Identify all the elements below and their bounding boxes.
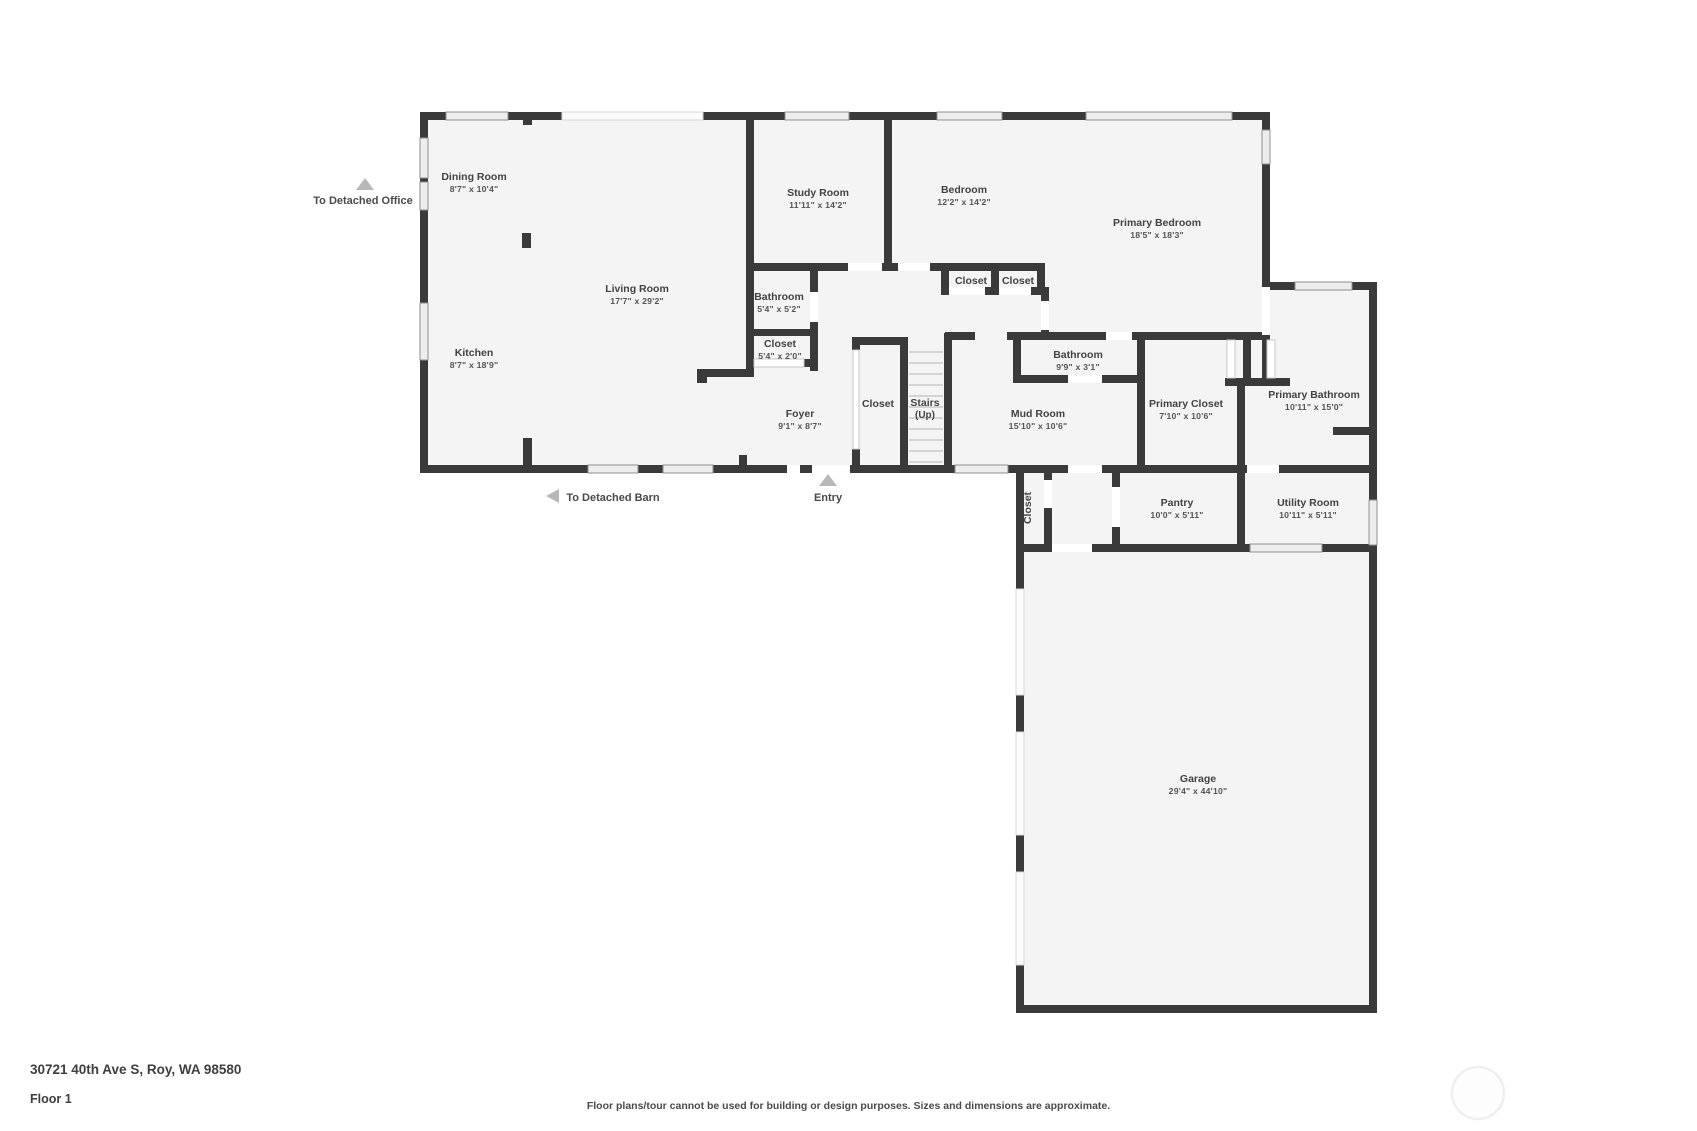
room-dims-pantry: 10'0" x 5'11" xyxy=(1150,510,1203,520)
disclaimer-text: Floor plans/tour cannot be used for buil… xyxy=(0,1100,1697,1112)
room-label-primary-closet: Primary Closet xyxy=(1149,398,1224,410)
room-label-mud-room: Mud Room xyxy=(1011,408,1065,420)
room-label-closet-garage: Closet xyxy=(1022,491,1034,524)
room-dims-bedroom: 12'2" x 14'2" xyxy=(937,197,991,207)
room-dims-bathroom-hall: 5'4" x 5'2" xyxy=(757,304,801,314)
annotation-to-detached-office: To Detached Office xyxy=(313,195,412,207)
annotation-entry: Entry xyxy=(814,492,843,504)
up-arrow-icon xyxy=(819,474,837,486)
floor-plan-drawing: Dining Room8'7" x 10'4"Living Room17'7" … xyxy=(0,0,1697,1131)
room-label-pantry: Pantry xyxy=(1161,497,1194,509)
room-label-closet-foyer: Closet xyxy=(862,398,895,410)
up-arrow-icon xyxy=(356,178,374,190)
room-dims-stairs: (Up) xyxy=(915,410,935,421)
room-dims-primary-bathroom: 10'11" x 15'0" xyxy=(1285,402,1343,412)
room-label-study-room: Study Room xyxy=(787,187,849,199)
room-dims-primary-closet: 7'10" x 10'6" xyxy=(1159,411,1213,421)
floor-plan-page: Dining Room8'7" x 10'4"Living Room17'7" … xyxy=(0,0,1697,1131)
room-dims-closet-hall: 5'4" x 2'0" xyxy=(758,351,802,361)
room-dims-study-room: 11'11" x 14'2" xyxy=(789,200,847,210)
room-label-primary-bedroom: Primary Bedroom xyxy=(1113,217,1201,229)
room-dims-dining-room: 8'7" x 10'4" xyxy=(450,184,499,194)
room-label-bathroom-mud: Bathroom xyxy=(1053,349,1103,361)
property-address: 30721 40th Ave S, Roy, WA 98580 xyxy=(30,1062,241,1077)
room-dims-mud-room: 15'10" x 10'6" xyxy=(1009,421,1068,431)
left-arrow-icon xyxy=(546,489,559,503)
room-label-utility-room: Utility Room xyxy=(1277,497,1339,509)
room-label-kitchen: Kitchen xyxy=(455,347,494,359)
room-dims-living-room: 17'7" x 29'2" xyxy=(610,296,664,306)
room-label-closet-bedroom-2: Closet xyxy=(1002,275,1035,287)
room-label-closet-bedroom-1: Closet xyxy=(955,275,988,287)
room-dims-primary-bedroom: 18'5" x 18'3" xyxy=(1130,230,1184,240)
room-label-dining-room: Dining Room xyxy=(441,171,506,183)
room-label-stairs: Stairs xyxy=(910,397,939,409)
annotation-to-detached-barn: To Detached Barn xyxy=(566,492,660,504)
room-label-primary-bathroom: Primary Bathroom xyxy=(1268,389,1360,401)
room-label-bathroom-hall: Bathroom xyxy=(754,291,804,303)
room-dims-utility-room: 10'11" x 5'11" xyxy=(1279,510,1337,520)
room-label-living-room: Living Room xyxy=(605,283,669,295)
room-label-garage: Garage xyxy=(1180,773,1216,785)
floor-areas xyxy=(420,112,1377,1013)
room-label-bedroom: Bedroom xyxy=(941,184,987,196)
room-dims-foyer: 9'1" x 8'7" xyxy=(778,421,822,431)
room-dims-bathroom-mud: 9'9" x 3'1" xyxy=(1056,362,1100,372)
room-dims-garage: 29'4" x 44'10" xyxy=(1169,786,1228,796)
room-label-foyer: Foyer xyxy=(786,408,815,420)
room-dims-kitchen: 8'7" x 18'9" xyxy=(450,360,499,370)
room-label-closet-hall: Closet xyxy=(764,338,797,350)
